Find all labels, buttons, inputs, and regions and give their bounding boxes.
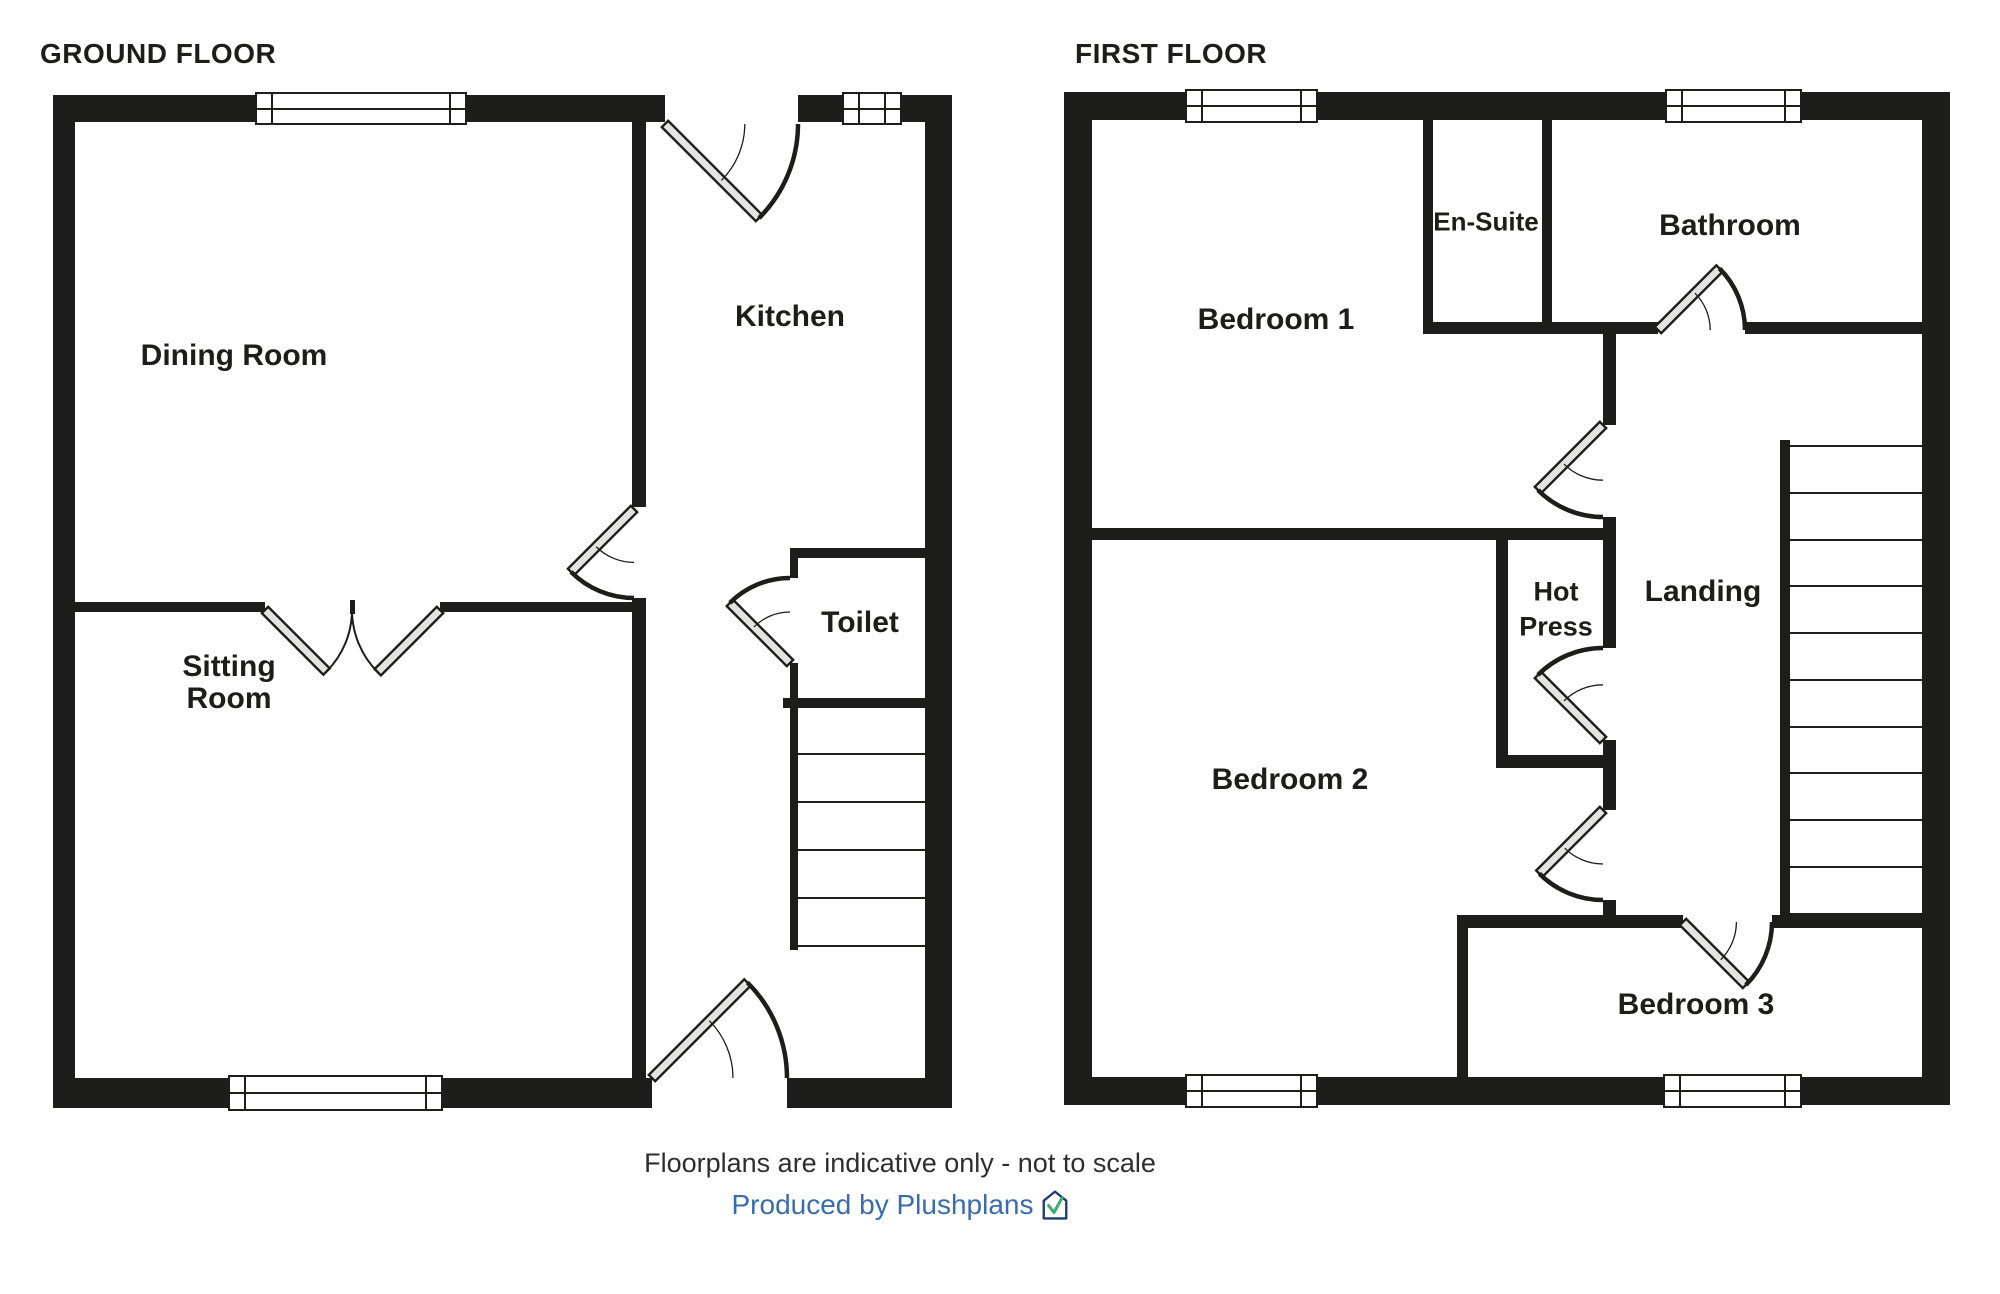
first-floor-stair-tread bbox=[1790, 492, 1922, 494]
first-floor-wall bbox=[1457, 915, 1683, 928]
first-floor-wall bbox=[1423, 322, 1658, 334]
plushplans-logo-icon bbox=[1042, 1190, 1068, 1220]
first-floor-wall bbox=[1603, 740, 1616, 810]
first-floor-stair-tread bbox=[1790, 445, 1922, 447]
first-floor-room-label: Landing bbox=[1645, 575, 1762, 609]
first-floor-wall bbox=[1775, 915, 1922, 928]
first-floor-wall bbox=[1542, 120, 1552, 324]
first-floor-stair-tread bbox=[1790, 866, 1922, 868]
first-floor-stair-tread bbox=[1790, 539, 1922, 541]
footer: Floorplans are indicative only - not to … bbox=[400, 1148, 1400, 1221]
first-floor-room-label: Hot bbox=[1534, 577, 1579, 608]
first-floor-wall bbox=[1745, 322, 1922, 334]
disclaimer-text: Floorplans are indicative only - not to … bbox=[400, 1148, 1400, 1179]
first-floor-wall bbox=[1496, 540, 1508, 768]
floorplan-canvas: GROUND FLOOR FIRST FLOOR Dining RoomKitc… bbox=[0, 0, 2000, 1294]
first-floor-window bbox=[1663, 1074, 1802, 1108]
first-floor-wall bbox=[1064, 92, 1092, 1105]
first-floor-room-label: Press bbox=[1519, 612, 1593, 643]
first-floor-stair-tread bbox=[1790, 726, 1922, 728]
first-floor-room-label: Bedroom 1 bbox=[1198, 303, 1355, 337]
first-floor-wall bbox=[1457, 928, 1468, 1077]
first-floor-window bbox=[1185, 1074, 1318, 1108]
first-floor-wall bbox=[1922, 92, 1950, 1105]
first-floor-room-label: Bedroom 3 bbox=[1618, 988, 1775, 1022]
first-floor-stair-tread bbox=[1790, 819, 1922, 821]
first-floor-wall bbox=[1496, 755, 1616, 768]
first-floor-wall bbox=[1603, 334, 1616, 425]
first-floor-stair-tread bbox=[1790, 913, 1922, 915]
first-floor-stair-tread bbox=[1790, 679, 1922, 681]
credit-text: Produced by Plushplans bbox=[732, 1189, 1034, 1221]
first-floor-room-label: Bedroom 2 bbox=[1212, 763, 1369, 797]
first-floor-window bbox=[1185, 89, 1318, 123]
first-floor-wall bbox=[1780, 440, 1790, 915]
first-floor-plan: Bedroom 1En-SuiteBathroomHotPressLanding… bbox=[0, 0, 2000, 1294]
first-floor-wall bbox=[1423, 120, 1433, 332]
first-floor-stair-tread bbox=[1790, 632, 1922, 634]
first-floor-window bbox=[1665, 89, 1802, 123]
first-floor-wall bbox=[1092, 528, 1616, 540]
first-floor-stair-tread bbox=[1790, 772, 1922, 774]
first-floor-room-label: Bathroom bbox=[1659, 209, 1801, 243]
first-floor-stair-tread bbox=[1790, 585, 1922, 587]
first-floor-room-label: En-Suite bbox=[1433, 207, 1538, 238]
